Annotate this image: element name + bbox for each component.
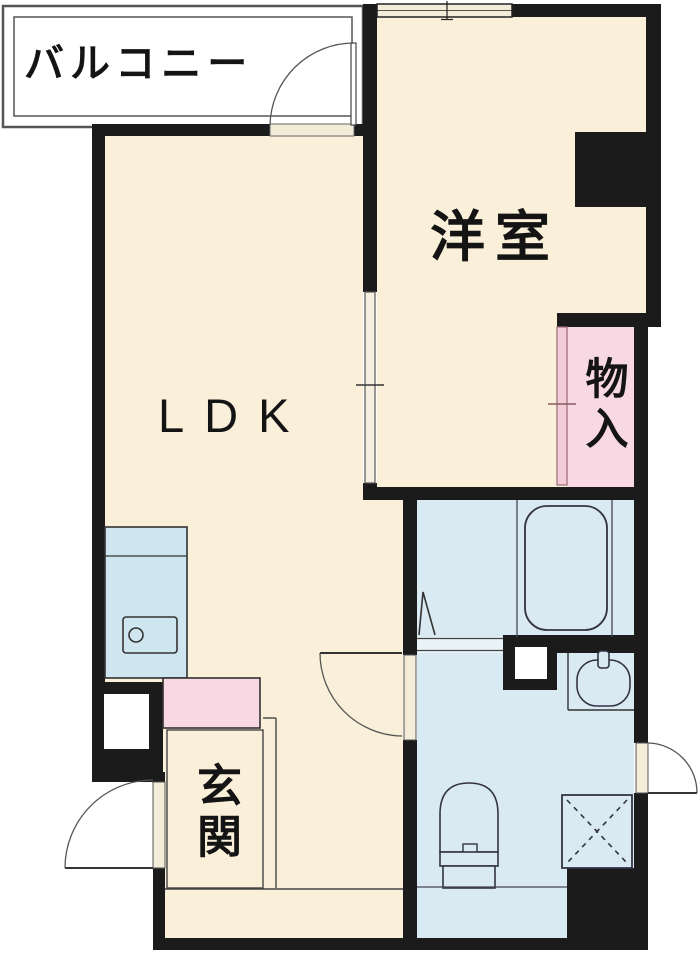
sliding-door-storage (557, 327, 567, 485)
wall-hallway-washroom-upper (403, 500, 417, 655)
pipe-space-inner (515, 647, 547, 679)
pillar (575, 132, 650, 207)
toilet-tank (443, 866, 495, 888)
meter-box-inner (104, 694, 149, 749)
wall-top-right (512, 4, 661, 17)
entrance-door-opening (153, 782, 165, 868)
washroom-door-opening (404, 655, 416, 740)
wall-ldk-top (92, 124, 270, 136)
balcony-label: バルコニー (24, 44, 253, 84)
washbasin-tap-icon (598, 651, 609, 668)
balcony-door-leaf (351, 43, 356, 125)
wall-bottom-right-block (567, 868, 648, 950)
toilet-mid-band (440, 852, 498, 866)
sliding-door-ldk-western (365, 292, 375, 483)
wall-ldk-western-upper (363, 17, 377, 292)
floor-plan: バルコニー 洋室 LDK 物入 玄関 (0, 0, 700, 953)
wall-below-entrance-door (153, 868, 165, 950)
wall-ldk-top-stub (354, 124, 363, 136)
floor-plan-drawing (0, 0, 700, 953)
storage-label: 物入 (581, 356, 624, 456)
wall-right-middle (634, 313, 648, 743)
ldk-label: LDK (158, 392, 309, 439)
wall-left (92, 124, 105, 772)
bathtub (525, 506, 607, 630)
wall-mid-horizontal (363, 487, 648, 500)
wall-hallway-washroom-lower (403, 740, 417, 938)
side-door-opening (636, 743, 648, 793)
western-room-label: 洋室 (430, 210, 560, 265)
wall-entrance-corner (92, 772, 165, 782)
faucet-icon (129, 628, 143, 642)
balcony-door-opening (270, 124, 354, 136)
entrance-label: 玄関 (193, 762, 238, 864)
shoe-cabinet (163, 678, 260, 728)
toilet-bowl-icon (440, 783, 498, 852)
kitchen-unit (105, 527, 187, 678)
hallway-floor (363, 500, 403, 938)
